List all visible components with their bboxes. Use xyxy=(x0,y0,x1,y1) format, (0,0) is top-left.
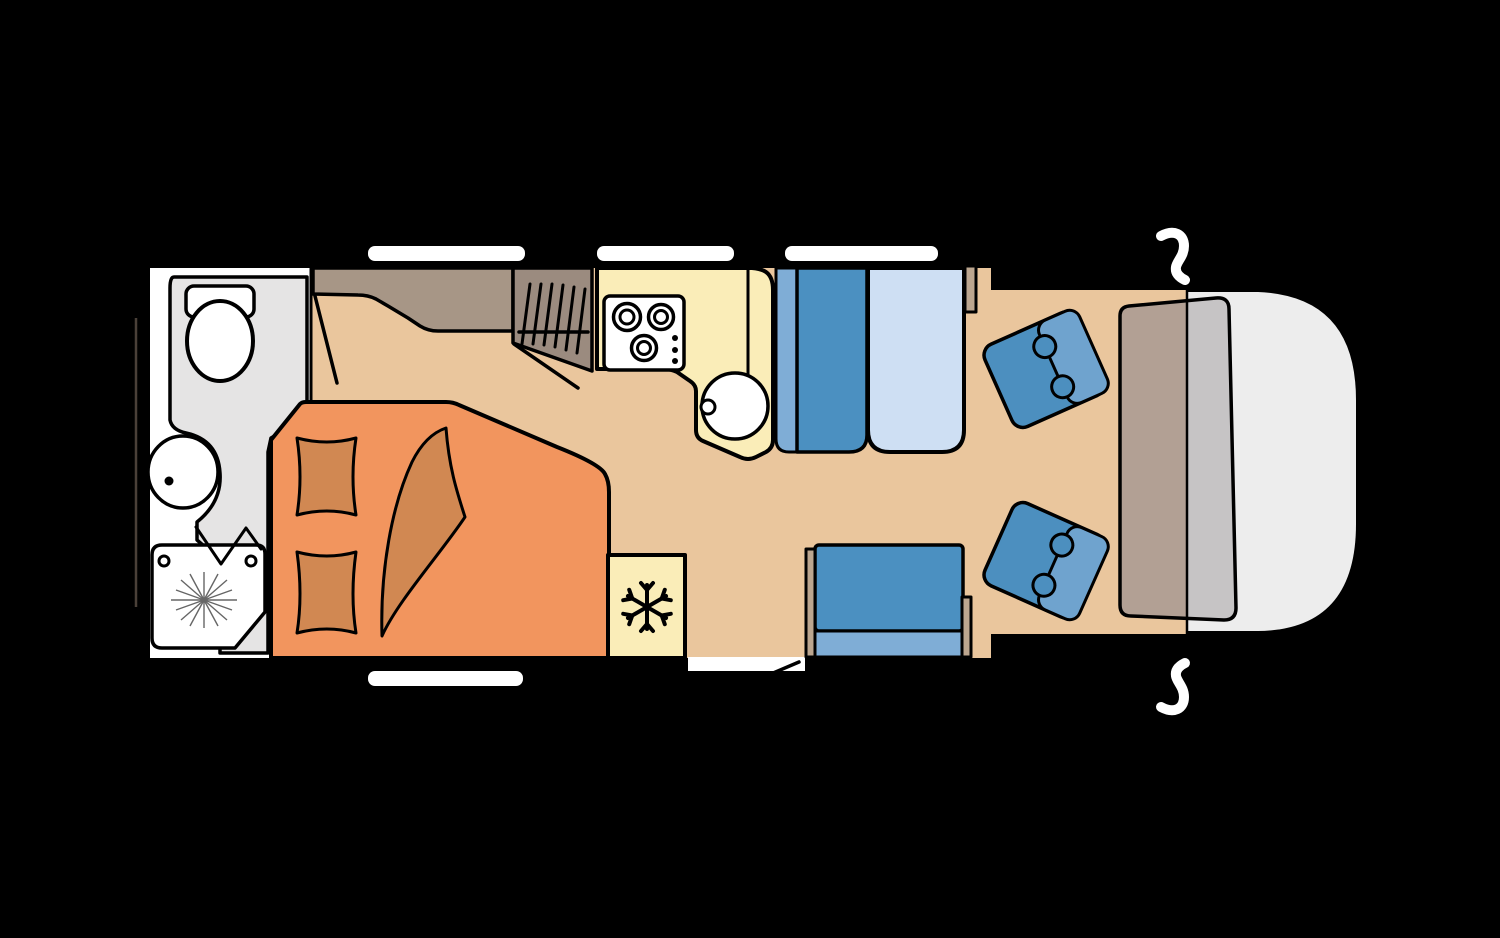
fridge xyxy=(608,555,685,658)
floorplan-canvas xyxy=(0,0,1500,938)
window-top-rear xyxy=(368,246,525,261)
shower-drain-right xyxy=(246,556,256,566)
washbasin-icon xyxy=(148,436,218,508)
travel-seat-backrest xyxy=(815,631,963,657)
wall-stub-top xyxy=(965,266,976,312)
stove-icon xyxy=(604,296,684,370)
stove-knob-1 xyxy=(672,335,678,341)
dinette-bench-seat xyxy=(797,268,867,452)
window-top-dinette xyxy=(785,246,938,261)
shower-drain-left xyxy=(159,556,169,566)
entry-door-gap xyxy=(688,657,805,671)
window-bottom-rear xyxy=(368,671,523,686)
travel-seat-bench xyxy=(815,545,963,631)
pillow-bottom xyxy=(297,552,356,633)
toilet-icon xyxy=(186,286,254,381)
shower-spray-starburst xyxy=(171,572,237,628)
washbasin-drain xyxy=(165,477,174,486)
drop-down-bed xyxy=(1120,298,1236,620)
wall-stub-bench-right xyxy=(962,597,971,657)
motorhome-floorplan xyxy=(0,0,1500,938)
stove-knob-2 xyxy=(672,347,678,353)
window-top-kitchen xyxy=(597,246,734,261)
dinette-bench-backrest xyxy=(776,268,797,452)
wall-stub-bench-left xyxy=(806,549,815,657)
washbasin-bowl xyxy=(148,436,218,508)
toilet-bowl xyxy=(187,301,253,381)
dinette-table xyxy=(868,268,964,452)
kitchen-sink-tap xyxy=(701,400,715,414)
stove-knob-3 xyxy=(672,358,678,364)
shower-icon xyxy=(152,527,265,648)
pillow-top xyxy=(297,438,356,515)
